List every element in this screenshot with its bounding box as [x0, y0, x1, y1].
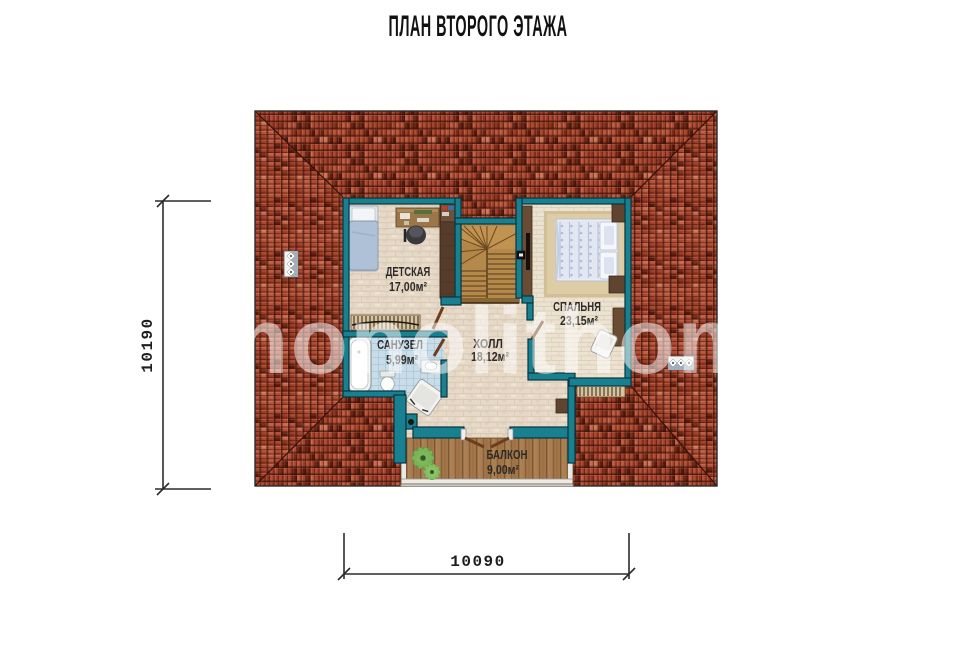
svg-text:ДЕТСКАЯ: ДЕТСКАЯ — [386, 266, 431, 280]
svg-text:БАЛКОН: БАЛКОН — [486, 449, 527, 462]
svg-text:10090: 10090 — [450, 553, 506, 571]
svg-text:monolithome.ru: monolithome.ru — [205, 288, 943, 393]
svg-text:10190: 10190 — [139, 317, 157, 373]
svg-text:9,00м²: 9,00м² — [487, 463, 519, 477]
svg-text:ПЛАН ВТОРОГО ЭТАЖА: ПЛАН ВТОРОГО ЭТАЖА — [388, 9, 567, 42]
